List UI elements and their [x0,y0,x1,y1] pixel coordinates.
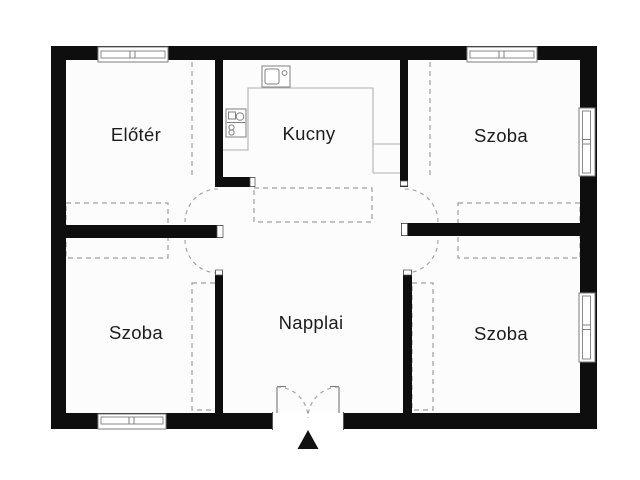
window-top-left [98,47,168,62]
room-label-eloter: Előtér [111,124,161,145]
floor-plan: Előtér Kucny Szoba Szoba Napplai Szoba [0,0,640,480]
wall-kitchen-left [215,56,223,187]
jamb-center-right [402,224,408,236]
wall-kitchen-stub [215,177,255,187]
floor-plan-page: Előtér Kucny Szoba Szoba Napplai Szoba [0,0,640,480]
window-right-lower [579,293,595,362]
jamb-divider-bottom-left [216,270,223,275]
sink-icon [262,66,290,87]
wall-divider-bottom-right [403,270,412,415]
stove-icon [226,109,246,137]
jamb-divider-bottom-right [404,270,412,275]
window-right-upper [579,108,595,176]
jamb-kitchen-right [401,181,408,186]
wall-outer-right [580,46,597,429]
window-top-right [467,47,537,62]
wall-center-right [401,223,583,236]
room-label-kucny: Kucny [283,123,336,144]
room-label-szoba-bottom-left: Szoba [109,322,163,343]
jamb-center-left [217,226,223,238]
wall-kitchen-right [400,56,408,187]
window-bottom-left [98,414,166,429]
room-label-szoba-bottom-right: Szoba [474,323,528,344]
jamb-kitchen-stub [250,178,255,187]
entrance-opening [273,412,343,430]
room-label-napplai: Napplai [279,312,344,333]
wall-divider-bottom-left [215,270,223,415]
wall-center-left [55,225,223,238]
room-label-szoba-top-right: Szoba [474,125,528,146]
